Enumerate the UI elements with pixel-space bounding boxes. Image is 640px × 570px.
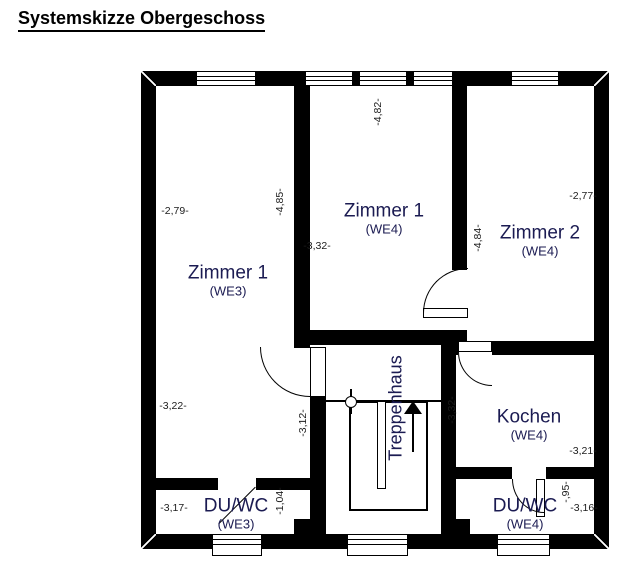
window-glazing-line [498, 539, 549, 540]
room-name: Zimmer 1 [188, 263, 268, 284]
room-label-zimmer1-we3: Zimmer 1 (WE3) [188, 263, 268, 298]
stair-direction-arrow-icon [404, 401, 422, 414]
room-unit: (WE4) [493, 517, 557, 531]
dim-treppenhaus-right: -3,32- [446, 396, 458, 423]
window-glazing-line [360, 80, 406, 81]
dim-zimmer2-width: -2,77- [569, 190, 596, 202]
corner-mark-top-left [141, 71, 156, 86]
corner-mark-top-right [594, 71, 609, 86]
room-unit: (WE3) [204, 517, 268, 531]
dim-duwc-we4-width: -3,16- [570, 502, 597, 514]
dim-duwc-we4-depth: -,95- [560, 481, 572, 503]
door-swing-kochen [458, 352, 492, 386]
window-duwc-we4 [497, 534, 550, 556]
window-glazing-line [197, 76, 255, 77]
dim-we4-zimmer1-width: -3,32- [303, 240, 330, 252]
window-zimmer1-we3 [197, 71, 255, 86]
door-leaf-kochen [458, 341, 492, 352]
wall-we3-duwc-left [156, 478, 218, 490]
dim-duwc-we3-width: -3,17- [160, 502, 187, 514]
window-zimmer2 [512, 71, 558, 86]
door-swing-we3-flur [260, 347, 310, 397]
wall-treppenhaus-right [441, 341, 456, 534]
wall-kochen-duwc-right [546, 467, 594, 479]
stair-arrow-stem [412, 412, 414, 452]
door-swing-zimmer1-we4 [423, 268, 468, 313]
wall-outer-left [141, 71, 156, 549]
window-glazing-line [197, 80, 255, 81]
window-zimmer1-we4-a [306, 71, 352, 86]
wall-kochen-top-right [492, 341, 594, 355]
window-zimmer1-we4-c [414, 71, 452, 86]
wall-outer-right [594, 71, 609, 549]
window-duwc-we3 [212, 534, 262, 556]
wall-kochen-duwc-left [456, 467, 512, 479]
window-glazing-line [414, 80, 452, 81]
section-marker-icon [345, 396, 357, 408]
corner-mark-bottom-right [594, 534, 609, 549]
room-unit: (WE3) [188, 284, 268, 298]
wall-notch-duwc-we4 [456, 519, 470, 534]
room-label-duwc-we3: DU/WC (WE3) [204, 496, 268, 531]
room-name: Zimmer 2 [500, 223, 580, 244]
room-unit: (WE4) [497, 428, 561, 442]
window-glazing-line [348, 539, 407, 540]
window-treppenhaus [347, 534, 408, 556]
wall-zimmer1-zimmer2 [452, 86, 467, 270]
window-glazing-line [512, 80, 558, 81]
page-title: Systemskizze Obergeschoss [18, 8, 265, 32]
corner-mark-bottom-left [141, 534, 156, 549]
dim-flur-height: -3,12- [297, 409, 309, 436]
room-name: Zimmer 1 [344, 201, 424, 222]
window-zimmer1-we4-b [360, 71, 406, 86]
window-glazing-line [360, 76, 406, 77]
window-glazing-line [213, 539, 261, 540]
window-glazing-line [348, 544, 407, 545]
door-leaf-we3-flur [310, 347, 326, 397]
room-name: DU/WC [493, 496, 557, 517]
dim-we4-zimmer1-height: -4,82- [372, 98, 384, 125]
room-unit: (WE4) [344, 222, 424, 236]
window-glazing-line [414, 76, 452, 77]
room-name: Kochen [497, 407, 561, 428]
room-name: DU/WC [204, 496, 268, 517]
dim-we3-width-top: -2,79- [161, 205, 188, 217]
window-glazing-line [306, 80, 352, 81]
wall-treppenhaus-left [310, 397, 326, 534]
window-glazing-line [306, 76, 352, 77]
dim-zimmer2-height-left: -4,84- [472, 224, 484, 251]
room-label-kochen: Kochen (WE4) [497, 407, 561, 442]
dim-duwc-we3-depth: -1,04- [274, 487, 286, 514]
room-label-zimmer1-we4: Zimmer 1 (WE4) [344, 201, 424, 236]
wall-we3-we4-upper [294, 86, 310, 348]
window-glazing-line [498, 544, 549, 545]
room-label-zimmer2-we4: Zimmer 2 (WE4) [500, 223, 580, 258]
dim-we3-width-bottom: -3,22- [159, 400, 186, 412]
room-label-treppenhaus: Treppenhaus [386, 355, 407, 460]
dim-we3-height-right: -4,85- [274, 188, 286, 215]
window-glazing-line [512, 76, 558, 77]
wall-notch-duwc-we3 [294, 519, 312, 534]
room-unit: (WE4) [500, 244, 580, 258]
floorplan-sketch: Systemskizze Obergeschoss [0, 0, 640, 570]
room-label-duwc-we4: DU/WC (WE4) [493, 496, 557, 531]
dim-kochen-width: -3,21- [569, 445, 596, 457]
window-glazing-line [213, 544, 261, 545]
